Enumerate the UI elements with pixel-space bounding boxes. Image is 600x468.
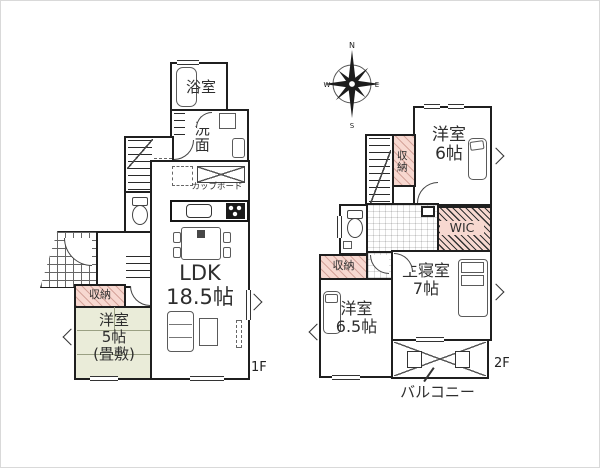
window <box>177 60 199 65</box>
compass-s: S <box>350 122 355 130</box>
stair-diagonal-line <box>368 150 391 210</box>
bath-label: 浴室 <box>178 79 224 96</box>
compass-w: W <box>324 81 331 89</box>
hall-shelf-icon <box>421 206 435 217</box>
compass-rose-icon: N W E S <box>323 40 381 130</box>
sofa-cushion-line <box>169 324 192 325</box>
chair-icon <box>173 232 181 243</box>
cupboard-label: カップボード <box>182 183 252 193</box>
floor1-label: 1F <box>251 360 267 375</box>
floor-plan-canvas: 浴室 洗面 収納 洋室 5帖 (畳敷) カップボード <box>0 0 600 468</box>
ldk-opening-dashed <box>154 158 172 159</box>
window <box>424 104 440 109</box>
closet-2f-top-label: 収納 <box>395 140 407 182</box>
bedroom65-label: 洋室 6.5帖 <box>319 300 394 336</box>
table-centerpiece-icon <box>197 230 205 238</box>
floor2-label: 2F <box>494 356 510 371</box>
sofa-icon <box>167 311 194 352</box>
window <box>190 376 224 381</box>
vanity-cabinet-icon <box>232 138 245 158</box>
balcony-unit-icon <box>407 351 422 368</box>
toilet-2f-washlet-icon <box>343 241 352 249</box>
cupboard-icon <box>197 166 245 183</box>
tatami-room-label: 洋室 5帖 (畳敷) <box>74 312 154 362</box>
genkan-step-lines <box>126 256 150 280</box>
chair-icon <box>223 232 231 243</box>
washer-space <box>174 113 185 137</box>
closet-1f-label: 収納 <box>76 289 124 301</box>
compass-n: N <box>349 41 355 50</box>
tatami-door-arc-icon <box>130 286 150 306</box>
window <box>90 376 118 381</box>
window <box>416 337 444 342</box>
compass-e: E <box>375 81 379 89</box>
stove-icon <box>226 203 245 219</box>
tv-board-icon <box>236 320 242 348</box>
pillow-icon <box>461 275 484 286</box>
coffee-table-icon <box>199 318 218 346</box>
pillow-icon <box>461 262 484 273</box>
closet-2f-left-label: 収納 <box>321 260 366 272</box>
toilet-1f-icon <box>132 205 148 225</box>
wic-label: WIC <box>440 221 484 235</box>
toilet-2f-icon <box>347 218 363 238</box>
window <box>337 216 342 238</box>
chair-icon <box>173 247 181 258</box>
bedroom6-label: 洋室 6帖 <box>413 126 485 164</box>
window <box>332 375 360 380</box>
balcony-label: バルコニー <box>380 384 495 401</box>
ldk-label: LDK 18.5帖 <box>150 262 250 309</box>
balcony-unit-icon <box>455 351 470 368</box>
washbasin-icon <box>219 113 236 129</box>
kitchen-sink-icon <box>186 204 212 218</box>
chair-icon <box>223 247 231 258</box>
window <box>448 104 464 109</box>
sofa-cushion-line <box>169 337 192 338</box>
